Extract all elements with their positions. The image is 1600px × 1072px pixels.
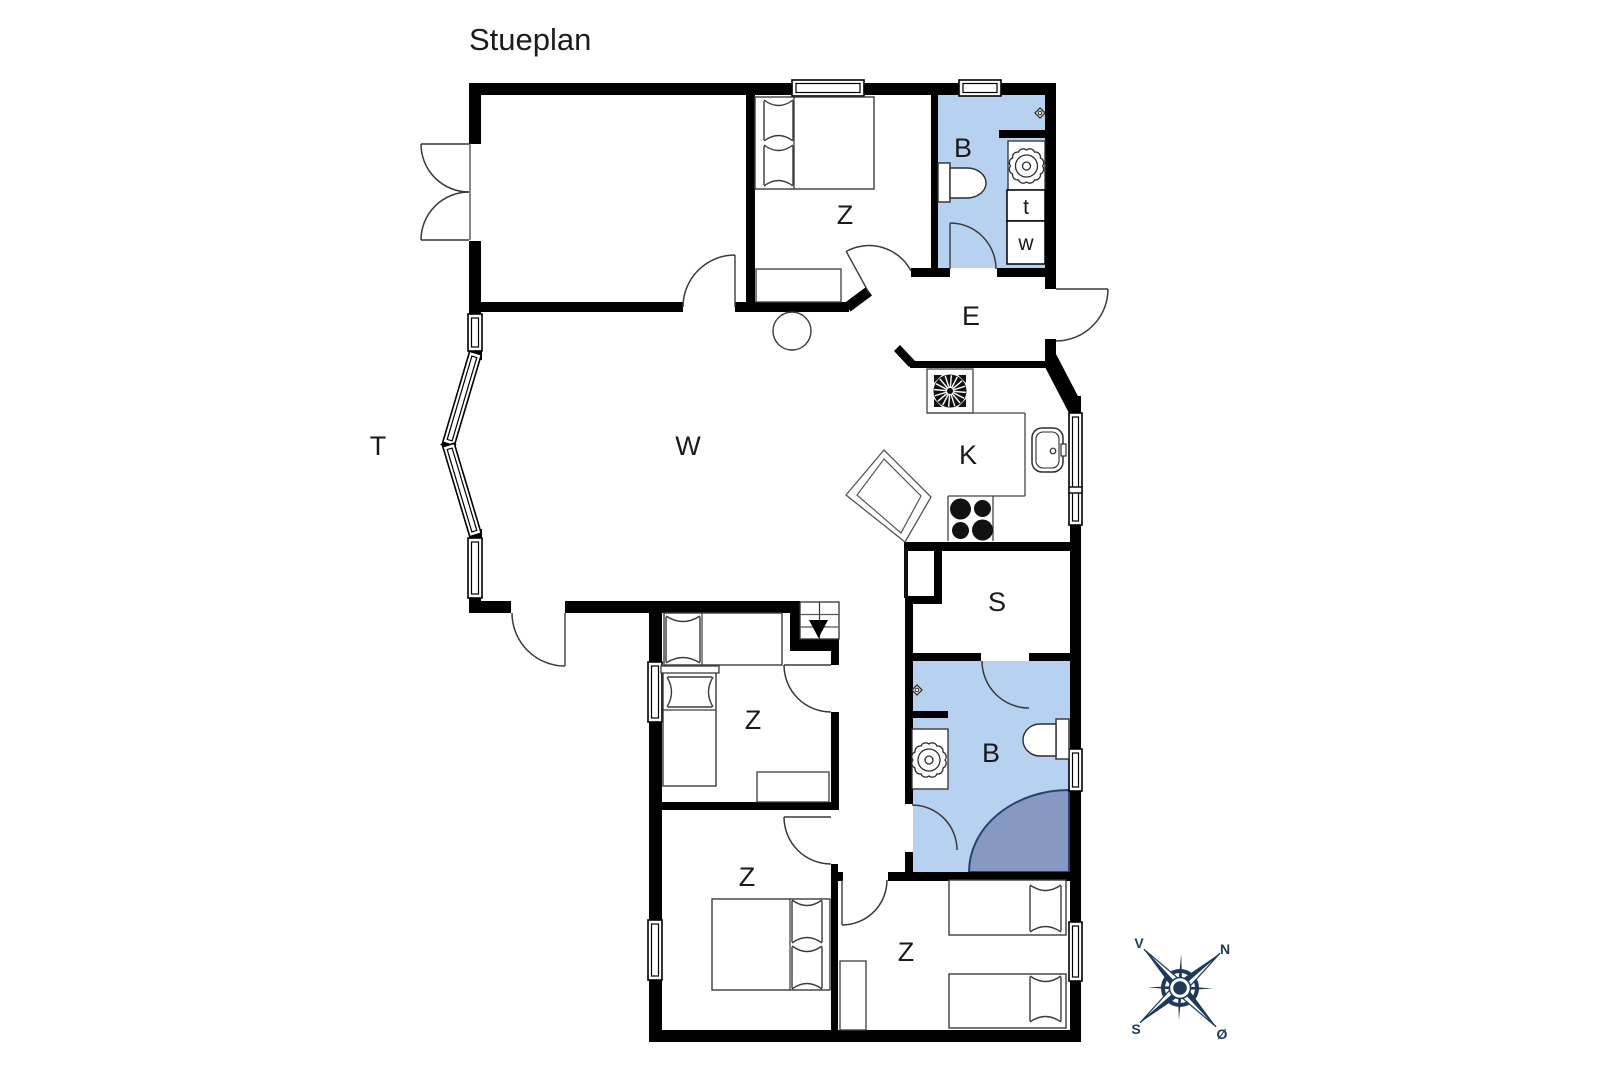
svg-text:t: t	[1023, 196, 1029, 219]
svg-text:Z: Z	[837, 200, 854, 230]
svg-text:N: N	[1220, 941, 1230, 957]
svg-text:W: W	[675, 431, 701, 461]
svg-text:w: w	[1017, 232, 1034, 255]
svg-text:Ø: Ø	[1217, 1026, 1228, 1042]
svg-text:K: K	[959, 440, 977, 470]
svg-text:S: S	[1131, 1021, 1140, 1037]
svg-text:B: B	[982, 738, 1000, 768]
svg-text:B: B	[954, 133, 972, 163]
svg-text:V: V	[1134, 935, 1144, 951]
svg-text:Z: Z	[745, 705, 762, 735]
svg-text:Z: Z	[739, 862, 756, 892]
svg-text:E: E	[962, 301, 980, 331]
svg-text:S: S	[988, 587, 1006, 617]
svg-text:Stueplan: Stueplan	[469, 22, 591, 57]
svg-text:T: T	[370, 431, 387, 461]
svg-text:Z: Z	[898, 937, 915, 967]
